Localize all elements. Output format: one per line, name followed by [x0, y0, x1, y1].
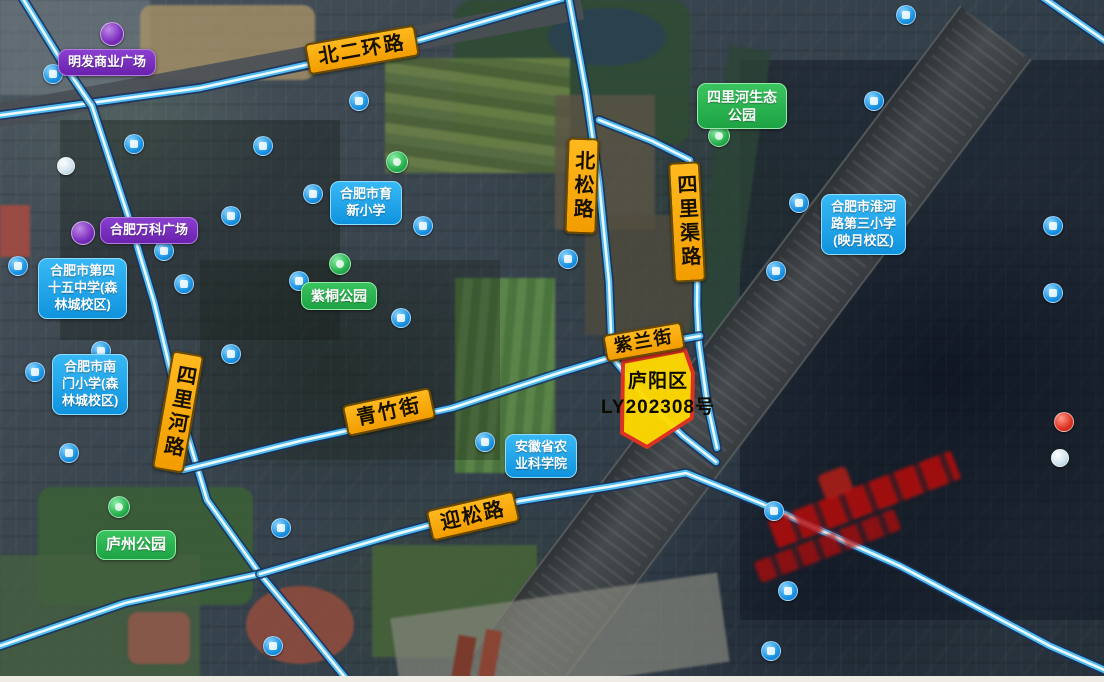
- poi-marker[interactable]: [57, 157, 75, 175]
- road-corner-northeast: [1038, 0, 1112, 50]
- poi-marker[interactable]: [391, 308, 411, 328]
- road-yingsong-west: [0, 574, 260, 648]
- poi-marker[interactable]: [71, 221, 95, 245]
- poi-marker[interactable]: [271, 518, 291, 538]
- poi-marker[interactable]: [263, 636, 283, 656]
- image-margin: [1104, 0, 1112, 682]
- poi-marker[interactable]: [329, 253, 351, 275]
- poi-marker[interactable]: [25, 362, 45, 382]
- road-label-beisong[interactable]: 北松路: [564, 137, 599, 234]
- poi-marker[interactable]: [778, 581, 798, 601]
- poi-marker[interactable]: [8, 256, 28, 276]
- poi-label-huaihe-3rd-primary[interactable]: 合肥市淮河 路第三小学 (映月校区): [821, 194, 906, 255]
- poi-marker[interactable]: [413, 216, 433, 236]
- poi-label-zitong-park[interactable]: 紫桐公园: [301, 282, 377, 310]
- road-network: [0, 0, 1112, 682]
- poi-marker[interactable]: [386, 151, 408, 173]
- poi-marker[interactable]: [253, 136, 273, 156]
- poi-marker[interactable]: [761, 641, 781, 661]
- poi-label-silihe-eco-park[interactable]: 四里河生态 公园: [697, 83, 787, 129]
- parcel-code: LY202308号: [592, 395, 724, 421]
- poi-marker[interactable]: [59, 443, 79, 463]
- poi-marker[interactable]: [349, 91, 369, 111]
- poi-marker[interactable]: [221, 206, 241, 226]
- poi-marker[interactable]: [1054, 412, 1074, 432]
- road-label-siliqu[interactable]: 四里渠路: [668, 161, 706, 283]
- poi-marker[interactable]: [1043, 216, 1063, 236]
- poi-marker[interactable]: [154, 241, 174, 261]
- poi-marker[interactable]: [1051, 449, 1069, 467]
- parcel-district: 庐阳区: [592, 369, 724, 395]
- poi-marker[interactable]: [303, 184, 323, 204]
- poi-marker[interactable]: [896, 5, 916, 25]
- poi-marker[interactable]: [789, 193, 809, 213]
- poi-marker[interactable]: [100, 22, 124, 46]
- image-margin: [0, 676, 1104, 682]
- poi-marker[interactable]: [475, 432, 495, 452]
- poi-marker[interactable]: [221, 344, 241, 364]
- poi-marker[interactable]: [1043, 283, 1063, 303]
- poi-label-mingfa-plaza[interactable]: 明发商业广场: [58, 49, 156, 76]
- poi-marker[interactable]: [864, 91, 884, 111]
- poi-label-luzhou-park[interactable]: 庐州公园: [96, 530, 176, 560]
- map-canvas[interactable]: 北二环路 北松路 四里渠路 四里河路 青竹街 紫兰街 迎松路 明发商业广场 四里…: [0, 0, 1112, 682]
- poi-label-agri-academy[interactable]: 安徽省农 业科学院: [505, 434, 577, 478]
- poi-marker[interactable]: [108, 496, 130, 518]
- poi-label-no45-middle-school[interactable]: 合肥市第四 十五中学(森 林城校区): [38, 258, 127, 319]
- poi-marker[interactable]: [124, 134, 144, 154]
- poi-marker[interactable]: [174, 274, 194, 294]
- poi-label-nanmen-primary[interactable]: 合肥市南 门小学(森 林城校区): [52, 354, 128, 415]
- parcel-label: 庐阳区 LY202308号: [592, 369, 724, 420]
- poi-marker[interactable]: [558, 249, 578, 269]
- poi-label-vanke-plaza[interactable]: 合肥万科广场: [100, 217, 198, 244]
- poi-marker[interactable]: [766, 261, 786, 281]
- poi-marker[interactable]: [764, 501, 784, 521]
- poi-label-yuxin-primary[interactable]: 合肥市育 新小学: [330, 181, 402, 225]
